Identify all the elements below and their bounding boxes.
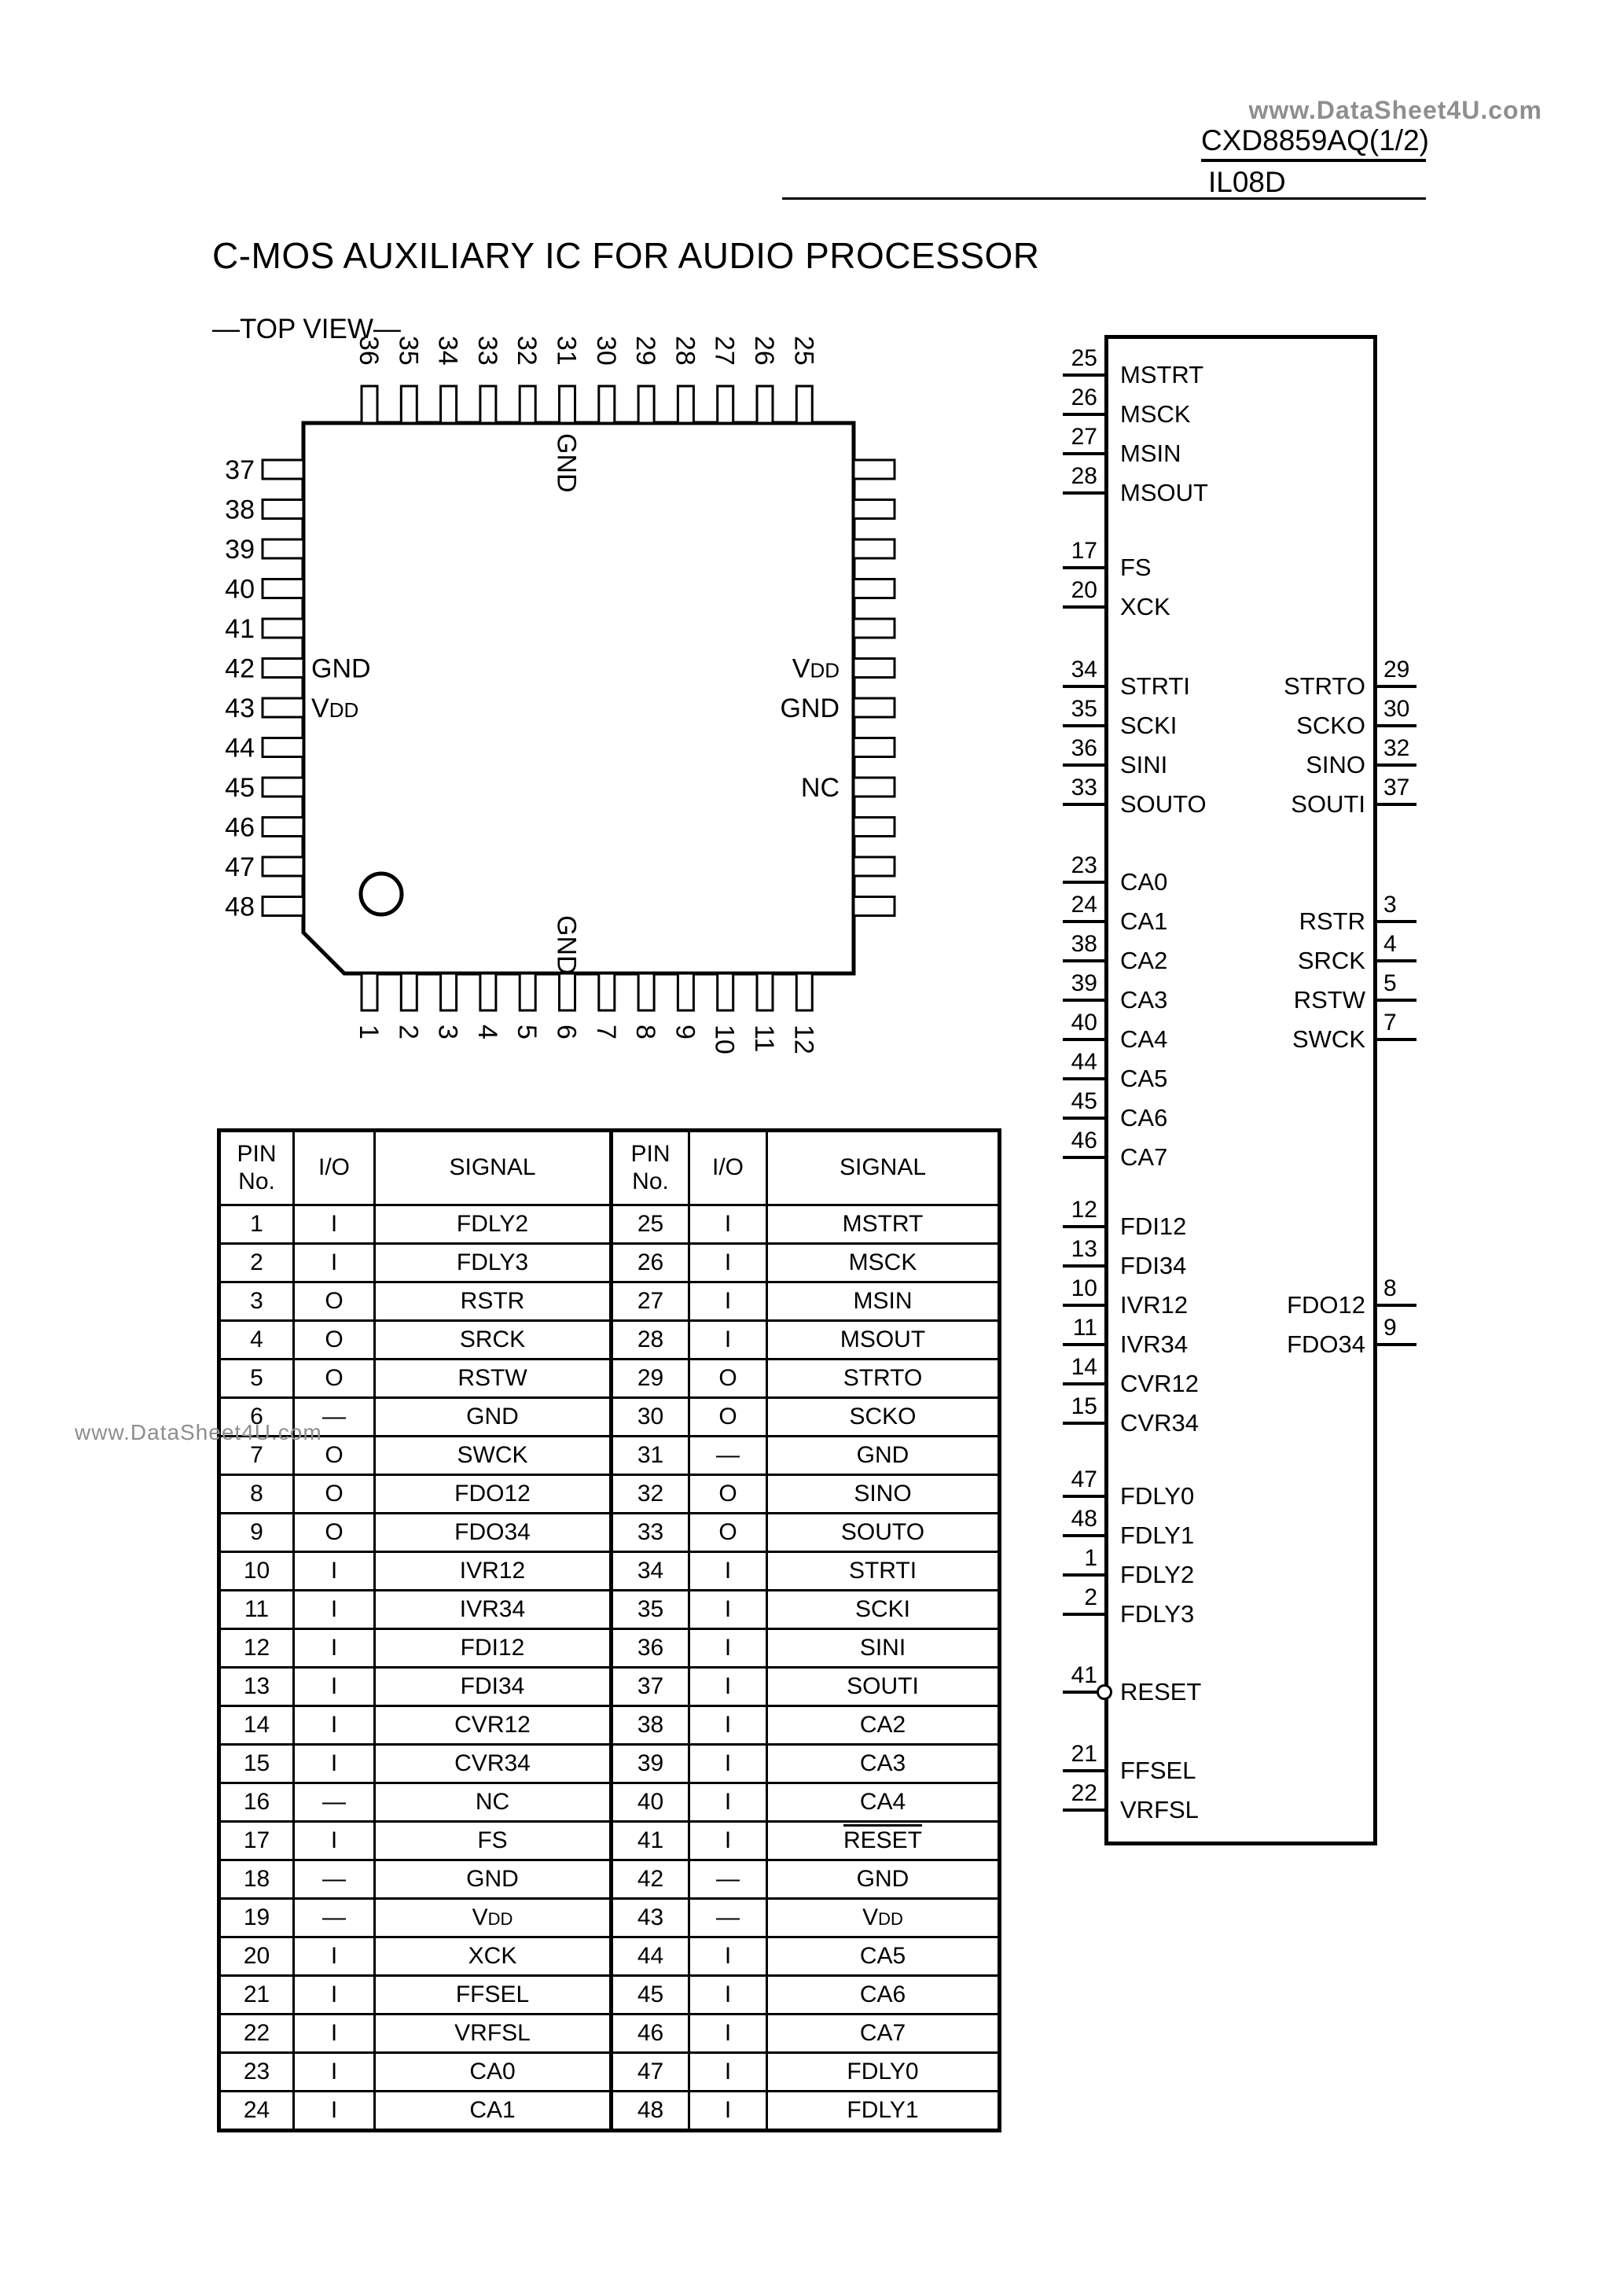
- chip-pin: [854, 659, 895, 678]
- table-row: 2IFDLY326IMSCK: [219, 1244, 1000, 1282]
- chip-pin: [854, 500, 895, 519]
- table-row: 11IIVR3435ISCKI: [219, 1591, 1000, 1629]
- diagram-pin-number: 7: [1383, 1010, 1467, 1036]
- diagram-signal-label: IVR34: [1120, 1330, 1188, 1360]
- diagram-pin-number: 38: [1014, 931, 1097, 958]
- chip-pin: [263, 539, 303, 558]
- chip-pin-number: 33: [472, 336, 502, 366]
- table-header-row: PIN No. I/O SIGNAL PIN No. I/O SIGNAL: [219, 1131, 1000, 1205]
- chip-pin: [854, 778, 895, 797]
- diagram-stub-line: [1063, 999, 1104, 1002]
- table-row: 16—NC40ICA4: [219, 1783, 1000, 1822]
- diagram-stub-line: [1373, 1343, 1416, 1346]
- chip-pin: [401, 973, 417, 1010]
- cell-signal: GND: [375, 1860, 612, 1899]
- chip-pin: [520, 386, 535, 423]
- table-row: 14ICVR1238ICA2: [219, 1706, 1000, 1745]
- cell-pin-no: 1: [219, 1205, 294, 1244]
- diagram-signal-label: RSTR: [1179, 907, 1365, 936]
- diagram-pin-number: 34: [1014, 657, 1097, 683]
- chip-pin-number: 26: [749, 336, 779, 366]
- table-row: 21IFFSEL45ICA6: [219, 1976, 1000, 2015]
- cell-signal: VDD: [767, 1899, 1000, 1937]
- chip-pin: [441, 973, 457, 1010]
- chip-pin-number: 32: [512, 336, 542, 366]
- pin-table: PIN No. I/O SIGNAL PIN No. I/O SIGNAL 1I…: [217, 1128, 1001, 2132]
- chip-pin: [362, 386, 377, 423]
- diagram-stub-line: [1063, 452, 1104, 455]
- cell-io: I: [294, 2015, 375, 2053]
- cell-signal: RESET: [767, 1822, 1000, 1860]
- chip-pin-number: 6: [552, 1025, 582, 1039]
- cell-pin-no: 34: [612, 1552, 689, 1591]
- diagram-stub-line: [1373, 803, 1416, 806]
- cell-signal: CA7: [767, 2015, 1000, 2053]
- chip-pin: [263, 619, 303, 638]
- cell-signal: FDI12: [375, 1629, 612, 1668]
- chip-inner-label-gnd-bottom: GND: [552, 915, 582, 975]
- cell-pin-no: 44: [612, 1937, 689, 1976]
- cell-io: I: [294, 1205, 375, 1244]
- chip-pin-number: 39: [225, 535, 255, 565]
- chip-pin-number: 1: [354, 1025, 384, 1039]
- part-number-underline: [1201, 159, 1426, 162]
- cell-signal: CA4: [767, 1783, 1000, 1822]
- cell-pin-no: 2: [219, 1244, 294, 1282]
- chip-pin: [263, 500, 303, 519]
- doc-code-underline: [782, 197, 1426, 200]
- chip-pin: [854, 738, 895, 757]
- cell-pin-no: 19: [219, 1899, 294, 1937]
- cell-io: I: [689, 1783, 767, 1822]
- diagram-stub-line: [1063, 881, 1104, 884]
- table-row: 19—VDD43—VDD: [219, 1899, 1000, 1937]
- chip-pin-number: 9: [670, 1025, 700, 1039]
- side-watermark: www.DataSheet4U.com: [75, 1420, 322, 1445]
- diagram-pin-number: 30: [1383, 696, 1467, 723]
- cell-pin-no: 22: [219, 2015, 294, 2053]
- diagram-signal-label: SINI: [1120, 750, 1167, 780]
- diagram-stub-line: [1063, 1117, 1104, 1120]
- diagram-signal-label: IVR12: [1120, 1290, 1188, 1320]
- diagram-pin-number: 46: [1014, 1128, 1097, 1154]
- cell-pin-no: 23: [219, 2053, 294, 2092]
- cell-io: I: [689, 1591, 767, 1629]
- diagram-stub-line: [1063, 1038, 1104, 1041]
- cell-pin-no: 3: [219, 1282, 294, 1321]
- diagram-pin-number: 39: [1014, 970, 1097, 997]
- cell-pin-no: 5: [219, 1360, 294, 1398]
- diagram-signal-label: CA0: [1120, 867, 1167, 897]
- cell-signal: MSIN: [767, 1282, 1000, 1321]
- diagram-signal-label: CA6: [1120, 1103, 1167, 1133]
- chip-inner-label: VDD: [792, 654, 840, 684]
- cell-io: O: [689, 1514, 767, 1552]
- chip-pin: [263, 659, 303, 678]
- cell-io: I: [689, 2053, 767, 2092]
- cell-pin-no: 41: [612, 1822, 689, 1860]
- diagram-stub-line: [1063, 1264, 1104, 1268]
- cell-signal: SOUTI: [767, 1668, 1000, 1706]
- diagram-stub-line: [1063, 491, 1104, 495]
- diagram-signal-label: FS: [1120, 553, 1152, 583]
- cell-io: I: [689, 1629, 767, 1668]
- chip-pin: [854, 818, 895, 837]
- cell-pin-no: 24: [219, 2092, 294, 2131]
- diagram-pin-number: 5: [1383, 970, 1467, 997]
- cell-io: I: [689, 1321, 767, 1360]
- table-row: 7OSWCK31—GND: [219, 1437, 1000, 1475]
- chip-pin-number: 29: [630, 336, 660, 366]
- diagram-signal-label: FFSEL: [1120, 1756, 1196, 1786]
- col-header-pin-no: PIN No.: [219, 1131, 294, 1205]
- cell-signal: SWCK: [375, 1437, 612, 1475]
- chip-pin: [599, 973, 615, 1010]
- diagram-stub-line: [1063, 724, 1104, 727]
- cell-io: —: [294, 1783, 375, 1822]
- table-row: 6—GND30OSCKO: [219, 1398, 1000, 1437]
- cell-signal: SCKO: [767, 1398, 1000, 1437]
- chip-pin-number: 3: [433, 1025, 463, 1039]
- col-header-signal-2: SIGNAL: [767, 1131, 1000, 1205]
- diagram-pin-number: 20: [1014, 577, 1097, 604]
- cell-pin-no: 33: [612, 1514, 689, 1552]
- chip-pin: [263, 580, 303, 598]
- diagram-signal-label: CA1: [1120, 907, 1167, 936]
- cell-io: O: [294, 1321, 375, 1360]
- diagram-signal-label: FDLY1: [1120, 1521, 1194, 1551]
- diagram-pin-number: 25: [1014, 345, 1097, 372]
- cell-pin-no: 14: [219, 1706, 294, 1745]
- cell-pin-no: 27: [612, 1282, 689, 1321]
- diagram-stub-line: [1063, 373, 1104, 377]
- chip-pin: [480, 386, 496, 423]
- table-row: 3ORSTR27IMSIN: [219, 1282, 1000, 1321]
- diagram-pin-number: 47: [1014, 1466, 1097, 1493]
- table-row: 20IXCK44ICA5: [219, 1937, 1000, 1976]
- chip-pin: [854, 698, 895, 717]
- diagram-pin-number: 21: [1014, 1741, 1097, 1768]
- diagram-signal-label: XCK: [1120, 592, 1170, 622]
- chip-pin: [796, 973, 812, 1010]
- chip-pin: [560, 386, 575, 423]
- diagram-pin-number: 32: [1383, 735, 1467, 762]
- cell-pin-no: 18: [219, 1860, 294, 1899]
- cell-pin-no: 12: [219, 1629, 294, 1668]
- chip-pin-number: 37: [225, 455, 255, 485]
- cell-io: I: [294, 1937, 375, 1976]
- chip-pin-number: 2: [393, 1025, 423, 1039]
- table-row: 13IFDI3437ISOUTI: [219, 1668, 1000, 1706]
- chip-pin: [718, 973, 733, 1010]
- diagram-signal-label: CVR34: [1120, 1408, 1199, 1438]
- cell-signal: SOUTO: [767, 1514, 1000, 1552]
- chip-pin-number: 12: [788, 1025, 818, 1054]
- chip-diagram-svg: 3635343332313029282726251234567891011123…: [197, 318, 904, 1097]
- cell-pin-no: 31: [612, 1437, 689, 1475]
- cell-signal: IVR34: [375, 1591, 612, 1629]
- chip-pin-number: 5: [512, 1025, 542, 1039]
- cell-io: —: [294, 1860, 375, 1899]
- chip-pin: [854, 580, 895, 598]
- table-row: 18—GND42—GND: [219, 1860, 1000, 1899]
- diagram-stub-line: [1373, 763, 1416, 767]
- cell-io: O: [294, 1514, 375, 1552]
- cell-signal: MSOUT: [767, 1321, 1000, 1360]
- diagram-signal-label: RESET: [1120, 1677, 1201, 1707]
- cell-signal: STRTO: [767, 1360, 1000, 1398]
- cell-pin-no: 38: [612, 1706, 689, 1745]
- diagram-pin-number: 17: [1014, 538, 1097, 565]
- cell-io: I: [689, 1937, 767, 1976]
- diagram-signal-label: FDLY3: [1120, 1599, 1194, 1629]
- cell-pin-no: 45: [612, 1976, 689, 2015]
- diagram-stub-line: [1063, 1382, 1104, 1385]
- chip-pin: [263, 857, 303, 876]
- diagram-reset-bubble: [1097, 1684, 1112, 1700]
- diagram-signal-label: MSIN: [1120, 439, 1181, 469]
- cell-signal: GND: [375, 1398, 612, 1437]
- chip-pin: [678, 386, 693, 423]
- cell-signal: FDLY2: [375, 1205, 612, 1244]
- diagram-stub-line: [1063, 1534, 1104, 1537]
- top-watermark: www.DataSheet4U.com: [1249, 96, 1542, 125]
- chip-pin-number: 30: [591, 336, 621, 366]
- chip-pin-number: 8: [630, 1025, 660, 1039]
- chip-pin: [757, 973, 773, 1010]
- diagram-pin-number: 33: [1014, 775, 1097, 801]
- diagram-stub-line: [1063, 1156, 1104, 1159]
- chip-pin: [638, 973, 654, 1010]
- cell-io: I: [294, 1244, 375, 1282]
- chip-pin-number: 28: [670, 336, 700, 366]
- diagram-pin-number: 22: [1014, 1780, 1097, 1807]
- table-row: 23ICA047IFDLY0: [219, 2053, 1000, 2092]
- cell-io: O: [294, 1475, 375, 1514]
- chip-inner-label: NC: [801, 773, 840, 803]
- chip-pin: [263, 738, 303, 757]
- chip-pin: [638, 386, 654, 423]
- cell-io: I: [294, 1629, 375, 1668]
- cell-signal: GND: [767, 1437, 1000, 1475]
- cell-signal: FS: [375, 1822, 612, 1860]
- diagram-signal-label: CA7: [1120, 1142, 1167, 1172]
- chip-pin: [263, 818, 303, 837]
- diagram-signal-label: VRFSL: [1120, 1795, 1199, 1825]
- chip-pin-number: 11: [749, 1025, 779, 1052]
- diagram-signal-label: MSOUT: [1120, 478, 1208, 508]
- diagram-pin-number: 8: [1383, 1275, 1467, 1302]
- chip-pin: [718, 386, 733, 423]
- chip-pin: [854, 619, 895, 638]
- chip-pin-number: 46: [225, 813, 255, 843]
- cell-pin-no: 15: [219, 1745, 294, 1783]
- cell-io: I: [689, 1205, 767, 1244]
- chip-pin-number: 25: [788, 336, 818, 366]
- diagram-signal-label: SCKI: [1120, 711, 1177, 741]
- chip-pin: [854, 897, 895, 916]
- col-header-pin-no-2: PIN No.: [612, 1131, 689, 1205]
- chip-pin: [263, 778, 303, 797]
- cell-io: I: [294, 1822, 375, 1860]
- chip-pin1-marker: [361, 874, 402, 914]
- page-title: C-MOS AUXILIARY IC FOR AUDIO PROCESSOR: [212, 234, 1040, 277]
- table-row: 15ICVR3439ICA3: [219, 1745, 1000, 1783]
- diagram-stub-line: [1063, 1808, 1104, 1812]
- cell-io: I: [689, 1244, 767, 1282]
- chip-pin: [401, 386, 417, 423]
- diagram-stub-line: [1063, 566, 1104, 569]
- diagram-stub-line: [1063, 920, 1104, 923]
- cell-signal: FDLY0: [767, 2053, 1000, 2092]
- cell-io: —: [689, 1899, 767, 1937]
- diagram-signal-label: SWCK: [1179, 1025, 1365, 1054]
- chip-pin-number: 36: [354, 336, 384, 366]
- cell-signal: MSTRT: [767, 1205, 1000, 1244]
- diagram-stub-line: [1063, 1613, 1104, 1616]
- diagram-pin-number: 29: [1383, 657, 1467, 683]
- cell-signal: FDLY3: [375, 1244, 612, 1282]
- chip-pin: [854, 539, 895, 558]
- cell-pin-no: 35: [612, 1591, 689, 1629]
- chip-inner-label-gnd-top: GND: [552, 433, 582, 493]
- chip-pin: [263, 897, 303, 916]
- chip-pin-number: 45: [225, 773, 255, 803]
- diagram-signal-label: FDO12: [1179, 1290, 1365, 1320]
- col-header-io: I/O: [294, 1131, 375, 1205]
- cell-io: I: [689, 1282, 767, 1321]
- cell-signal: RSTR: [375, 1282, 612, 1321]
- diagram-stub-line: [1063, 1077, 1104, 1080]
- cell-pin-no: 39: [612, 1745, 689, 1783]
- chip-inner-label: VDD: [311, 694, 358, 723]
- cell-io: I: [294, 1976, 375, 2015]
- diagram-stub-line: [1063, 413, 1104, 416]
- table-row: 12IFDI1236ISINI: [219, 1629, 1000, 1668]
- chip-pin: [560, 973, 575, 1010]
- diagram-signal-label: CA2: [1120, 946, 1167, 976]
- diagram-pin-number: 2: [1014, 1584, 1097, 1611]
- cell-signal: SRCK: [375, 1321, 612, 1360]
- cell-io: I: [294, 1591, 375, 1629]
- cell-io: I: [294, 1552, 375, 1591]
- diagram-signal-label: SRCK: [1179, 946, 1365, 976]
- cell-signal: CA0: [375, 2053, 612, 2092]
- chip-pin: [520, 973, 535, 1010]
- chip-pin-number: 7: [591, 1025, 621, 1039]
- diagram-stub-line: [1063, 1343, 1104, 1346]
- chip-pin-number: 43: [225, 694, 255, 723]
- diagram-pin-number: 28: [1014, 463, 1097, 490]
- diagram-signal-label: SCKO: [1179, 711, 1365, 741]
- cell-pin-no: 29: [612, 1360, 689, 1398]
- diagram-pin-number: 9: [1383, 1315, 1467, 1341]
- chip-pin-number: 42: [225, 654, 255, 684]
- diagram-pin-number: 41: [1014, 1662, 1097, 1689]
- diagram-pin-number: 26: [1014, 385, 1097, 411]
- diagram-pin-number: 1: [1014, 1545, 1097, 1572]
- cell-io: I: [294, 1745, 375, 1783]
- diagram-signal-label: SOUTI: [1179, 789, 1365, 819]
- col-header-signal: SIGNAL: [375, 1131, 612, 1205]
- cell-signal: SCKI: [767, 1591, 1000, 1629]
- chip-pin: [362, 973, 377, 1010]
- table-row: 10IIVR1234ISTRTI: [219, 1552, 1000, 1591]
- cell-io: —: [294, 1899, 375, 1937]
- cell-signal: MSCK: [767, 1244, 1000, 1282]
- cell-signal: IVR12: [375, 1552, 612, 1591]
- diagram-signal-label: FDI12: [1120, 1212, 1186, 1242]
- cell-pin-no: 28: [612, 1321, 689, 1360]
- diagram-stub-line: [1063, 685, 1104, 688]
- table-row: 24ICA148IFDLY1: [219, 2092, 1000, 2131]
- cell-pin-no: 25: [612, 1205, 689, 1244]
- cell-pin-no: 48: [612, 2092, 689, 2131]
- doc-code: IL08D: [1208, 166, 1286, 199]
- diagram-signal-label: FDLY2: [1120, 1560, 1194, 1590]
- cell-signal: CVR12: [375, 1706, 612, 1745]
- part-number: CXD8859AQ(1/2): [1201, 124, 1429, 157]
- cell-signal: STRTI: [767, 1552, 1000, 1591]
- cell-io: O: [689, 1398, 767, 1437]
- cell-pin-no: 47: [612, 2053, 689, 2092]
- cell-signal: XCK: [375, 1937, 612, 1976]
- datasheet-page: www.DataSheet4U.com CXD8859AQ(1/2) IL08D…: [0, 0, 1624, 2296]
- cell-signal: FDO12: [375, 1475, 612, 1514]
- diagram-signal-label: RSTW: [1179, 985, 1365, 1015]
- chip-pin-number: 38: [225, 495, 255, 525]
- cell-io: I: [689, 1976, 767, 2015]
- diagram-stub-line: [1063, 1225, 1104, 1228]
- cell-pin-no: 42: [612, 1860, 689, 1899]
- cell-signal: SINO: [767, 1475, 1000, 1514]
- diagram-stub-line: [1373, 920, 1416, 923]
- diagram-stub-line: [1063, 1304, 1104, 1307]
- cell-io: I: [294, 2092, 375, 2131]
- cell-pin-no: 37: [612, 1668, 689, 1706]
- cell-signal: CA6: [767, 1976, 1000, 2015]
- diagram-pin-number: 14: [1014, 1354, 1097, 1381]
- cell-signal: NC: [375, 1783, 612, 1822]
- table-row: 5ORSTW29OSTRTO: [219, 1360, 1000, 1398]
- diagram-pin-number: 24: [1014, 892, 1097, 918]
- diagram-pin-number: 36: [1014, 735, 1097, 762]
- cell-signal: CA5: [767, 1937, 1000, 1976]
- diagram-stub-line: [1063, 605, 1104, 609]
- cell-io: O: [294, 1360, 375, 1398]
- diagram-pin-number: 48: [1014, 1506, 1097, 1533]
- chip-pin-number: 41: [225, 614, 255, 644]
- cell-pin-no: 30: [612, 1398, 689, 1437]
- table-row: 8OFDO1232OSINO: [219, 1475, 1000, 1514]
- chip-pin: [854, 857, 895, 876]
- chip-pin-number: 48: [225, 892, 255, 922]
- table-row: 22IVRFSL46ICA7: [219, 2015, 1000, 2053]
- diagram-stub-line: [1063, 1422, 1104, 1425]
- table-row: 9OFDO3433OSOUTO: [219, 1514, 1000, 1552]
- table-row: 4OSRCK28IMSOUT: [219, 1321, 1000, 1360]
- chip-pin: [441, 386, 457, 423]
- diagram-signal-label: CA5: [1120, 1064, 1167, 1094]
- cell-pin-no: 16: [219, 1783, 294, 1822]
- cell-signal: CA1: [375, 2092, 612, 2131]
- diagram-pin-number: 37: [1383, 775, 1467, 801]
- chip-pin-number: 47: [225, 852, 255, 882]
- cell-signal: FDLY1: [767, 2092, 1000, 2131]
- diagram-signal-label: SINO: [1179, 750, 1365, 780]
- cell-pin-no: 4: [219, 1321, 294, 1360]
- diagram-stub-line: [1373, 1038, 1416, 1041]
